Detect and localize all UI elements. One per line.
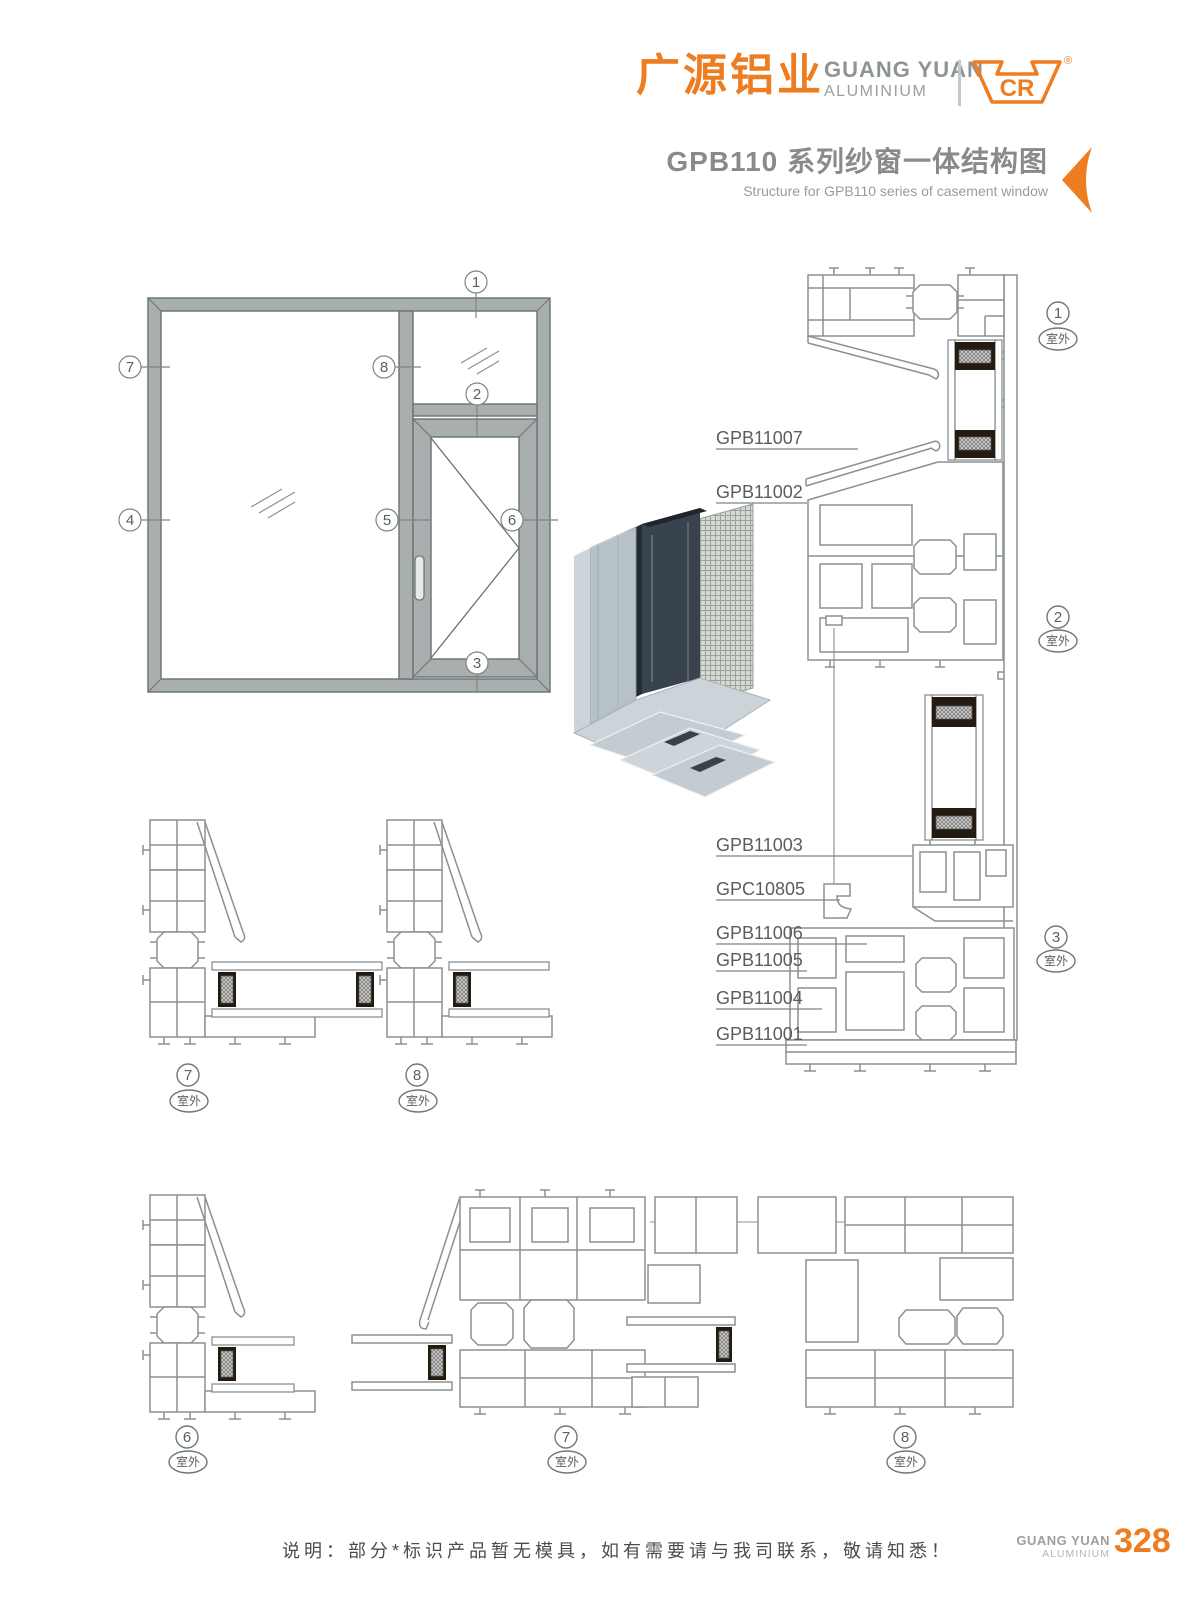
glass-unit-vertical-bottom xyxy=(925,695,983,840)
marker-3-loc: 室外 xyxy=(1044,953,1068,968)
bottom-wide-assembly xyxy=(352,1190,1013,1414)
marker-8b-loc: 室外 xyxy=(894,1454,918,1469)
callout-3: 3 xyxy=(473,655,481,672)
marker-8b-num: 8 xyxy=(901,1429,909,1446)
callout-6: 6 xyxy=(508,512,516,529)
marker-7b-loc: 室外 xyxy=(555,1454,579,1469)
opening-direction-lines xyxy=(431,438,519,658)
marker-2-loc: 室外 xyxy=(1046,633,1070,648)
horizontal-section-7 xyxy=(143,820,382,1044)
callout-8: 8 xyxy=(380,359,388,376)
callout-1: 1 xyxy=(472,274,480,291)
marker-7a-num: 7 xyxy=(184,1067,192,1084)
marker-7b-num: 7 xyxy=(562,1429,570,1446)
part-label-gpb11007: GPB11007 xyxy=(716,428,803,448)
page-subtitle: Structure for GPB110 series of casement … xyxy=(500,183,1048,199)
part-label-gpb11001: GPB11001 xyxy=(716,1024,803,1044)
product-3d-render xyxy=(574,504,775,797)
part-label-gpb11003: GPB11003 xyxy=(716,835,803,855)
registered-mark: ® xyxy=(1064,55,1072,67)
marker-1-loc: 室外 xyxy=(1046,331,1070,346)
elevation-mullion xyxy=(399,311,413,679)
part-label-gpb11002: GPB11002 xyxy=(716,482,803,502)
footer-note: 说明：部分*标识产品暂无模具，如有需要请与我司联系，敬请知悉！ xyxy=(282,1537,953,1563)
footer-brand: GUANG YUAN ALUMINIUM xyxy=(940,1533,1110,1561)
technical-drawing-canvas: 1 2 3 4 5 6 7 8 xyxy=(0,240,1200,1490)
marker-8a-loc: 室外 xyxy=(406,1093,430,1108)
glass-mark xyxy=(461,348,499,374)
aluminium-frame-face xyxy=(590,527,636,724)
callout-2: 2 xyxy=(473,386,481,403)
footer-brand-line2: ALUMINIUM xyxy=(940,1548,1110,1561)
logo-text: CR xyxy=(1000,75,1035,102)
callout-5: 5 xyxy=(383,512,391,529)
marker-6-loc: 室外 xyxy=(176,1454,200,1469)
callout-7: 7 xyxy=(126,359,134,376)
marker-3-num: 3 xyxy=(1052,929,1060,946)
glass-pane xyxy=(642,508,700,694)
callout-4: 4 xyxy=(126,512,134,529)
part-label-gpb11005: GPB11005 xyxy=(716,950,803,970)
page-number: 328 xyxy=(1114,1522,1171,1561)
footer-brand-line1: GUANG YUAN xyxy=(940,1533,1110,1548)
window-handle xyxy=(415,556,424,600)
elevation-callouts xyxy=(119,271,558,692)
page-title-block: GPB110 系列纱窗一体结构图 Structure for GPB110 se… xyxy=(500,146,1048,199)
window-elevation xyxy=(148,298,550,692)
glass-unit-vertical-top xyxy=(948,340,1002,460)
elevation-transom xyxy=(413,404,537,416)
brand-divider xyxy=(958,60,961,106)
horizontal-section-6 xyxy=(143,1195,315,1419)
marker-7a-loc: 室外 xyxy=(177,1093,201,1108)
brand-name-chinese: 广源铝业 xyxy=(636,48,824,104)
marker-2-num: 2 xyxy=(1054,609,1062,626)
catalog-page: 广源铝业 GUANG YUAN ALUMINIUM CR ® GPB110 系列… xyxy=(0,0,1200,1617)
glass-mark xyxy=(251,489,295,518)
marker-8a-num: 8 xyxy=(413,1067,421,1084)
elevation-callout-numbers: 1 2 3 4 5 6 7 8 xyxy=(126,274,516,672)
marker-6-num: 6 xyxy=(183,1429,191,1446)
company-logo-icon: CR ® xyxy=(968,52,1072,112)
title-arrow-icon xyxy=(1058,146,1094,219)
part-label-gpb11004: GPB11004 xyxy=(716,988,803,1008)
part-label-gpc10805: GPC10805 xyxy=(716,879,805,899)
page-title: GPB110 系列纱窗一体结构图 xyxy=(500,146,1048,178)
part-label-gpb11006: GPB11006 xyxy=(716,923,803,943)
marker-1-num: 1 xyxy=(1054,305,1062,322)
horizontal-section-8 xyxy=(380,820,552,1044)
